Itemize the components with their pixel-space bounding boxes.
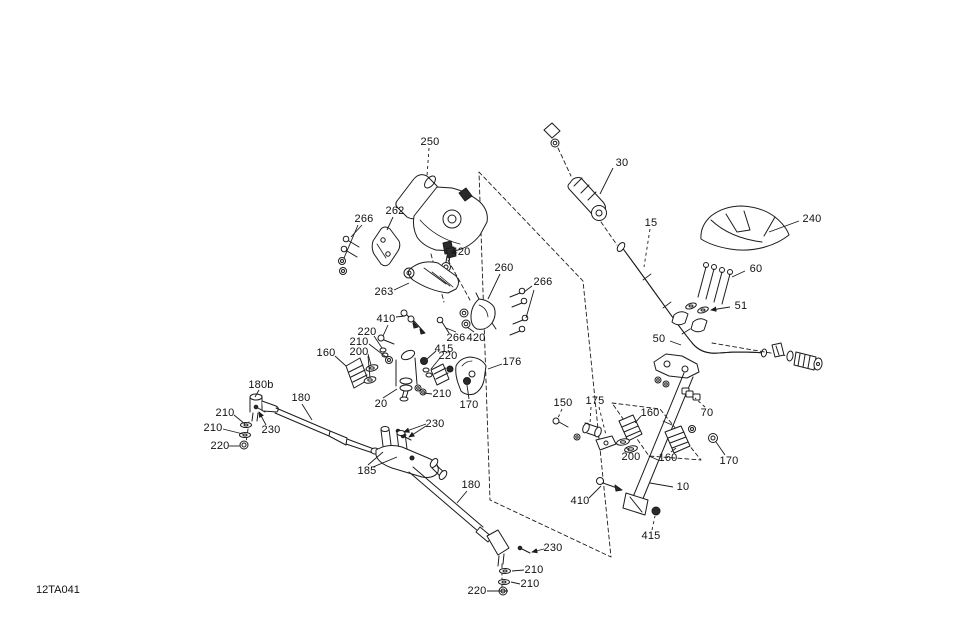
leader-line: [302, 404, 312, 420]
part-label-160: 160: [641, 407, 660, 419]
part-label-266: 266: [355, 213, 374, 225]
part-label-200: 200: [622, 451, 641, 463]
leader-line: [368, 452, 383, 465]
leader-line: [526, 290, 534, 318]
part-label-160: 160: [317, 347, 336, 359]
leader-line: [335, 356, 346, 366]
leader-line: [344, 225, 358, 258]
part-label-180: 180: [292, 392, 311, 404]
leader-line: [652, 516, 655, 530]
leader-line: [424, 393, 432, 394]
part-label-230: 230: [544, 542, 563, 554]
leader-line: [409, 426, 426, 437]
leader-line: [711, 307, 730, 310]
leader-line: [467, 385, 469, 399]
part-label-50: 50: [653, 333, 666, 345]
part-label-263: 263: [375, 286, 394, 298]
part-label-185: 185: [358, 465, 377, 477]
part-label-230: 230: [426, 418, 445, 430]
part-label-250: 250: [421, 136, 440, 148]
leader-line: [234, 415, 245, 424]
leader-line: [383, 389, 397, 398]
part-label-150: 150: [554, 397, 573, 409]
part-label-420: 420: [452, 246, 471, 258]
part-label-220: 220: [211, 440, 230, 452]
leader-line: [511, 582, 520, 584]
part-label-230: 230: [262, 424, 281, 436]
leader-line: [589, 486, 601, 498]
leader-line: [716, 442, 725, 455]
part-label-210: 210: [204, 422, 223, 434]
leader-line: [383, 325, 388, 336]
part-label-180: 180: [462, 479, 481, 491]
leader-line: [532, 549, 544, 552]
leader-line: [732, 271, 745, 277]
leader-line: [524, 286, 532, 292]
part-label-51: 51: [735, 300, 748, 312]
leader-line: [769, 221, 799, 232]
part-label-210: 210: [521, 578, 540, 590]
part-label-60: 60: [750, 263, 763, 275]
part-label-15: 15: [645, 217, 658, 229]
part-label-200: 200: [350, 346, 369, 358]
leader-line: [670, 341, 681, 345]
part-label-262: 262: [386, 205, 405, 217]
leader-line: [394, 283, 409, 290]
part-label-180b: 180b: [248, 379, 273, 391]
part-label-30: 30: [616, 157, 629, 169]
leader-line: [369, 344, 386, 357]
leader-line: [351, 225, 362, 237]
part-label-70: 70: [701, 407, 714, 419]
leader-line: [427, 148, 429, 176]
part-label-415: 415: [642, 530, 661, 542]
part-label-160: 160: [659, 452, 678, 464]
leader-line: [373, 457, 397, 467]
part-label-410: 410: [571, 495, 590, 507]
leader-line: [599, 407, 606, 435]
part-label-175: 175: [586, 395, 605, 407]
leader-line: [223, 429, 243, 434]
leader-line: [558, 409, 562, 418]
leader-line: [387, 217, 393, 230]
leader-line: [512, 570, 524, 571]
part-label-20: 20: [375, 398, 388, 410]
leader-line: [488, 364, 502, 369]
part-label-176: 176: [503, 356, 522, 368]
part-label-210: 210: [433, 388, 452, 400]
leader-line: [488, 274, 500, 299]
part-label-220: 220: [468, 585, 487, 597]
leader-line: [600, 168, 613, 194]
part-label-260: 260: [495, 262, 514, 274]
part-label-240: 240: [803, 213, 822, 225]
part-label-10: 10: [677, 481, 690, 493]
part-label-170: 170: [720, 455, 739, 467]
diagram-code: 12TA041: [36, 584, 80, 596]
leader-lines: [0, 0, 960, 621]
part-label-220: 220: [439, 350, 458, 362]
leader-line: [457, 491, 467, 503]
leader-line: [396, 316, 405, 317]
diagram-canvas: 2503024015605150266262420260266263266420…: [0, 0, 960, 621]
part-label-210: 210: [216, 407, 235, 419]
part-label-210: 210: [525, 564, 544, 576]
part-label-410: 410: [377, 313, 396, 325]
part-label-420: 420: [467, 332, 486, 344]
leader-line: [590, 407, 591, 424]
leader-line: [695, 398, 705, 407]
leader-line: [255, 390, 259, 397]
leader-line: [650, 483, 673, 487]
leader-line: [644, 229, 650, 267]
part-label-266: 266: [534, 276, 553, 288]
part-label-170: 170: [460, 399, 479, 411]
